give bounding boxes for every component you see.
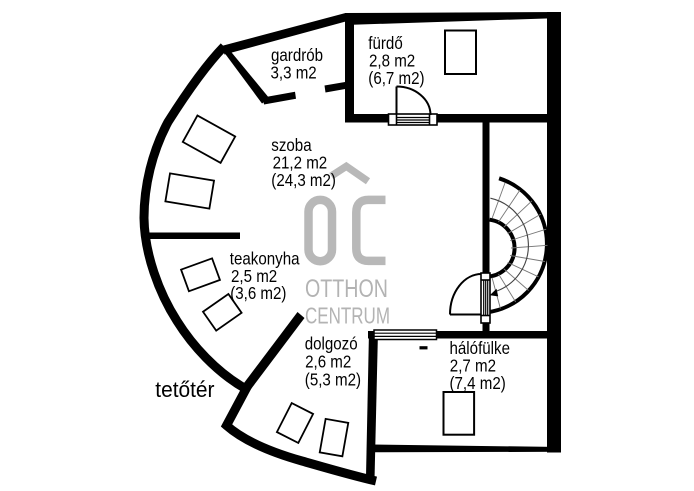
- svg-text:(3,6 m2): (3,6 m2): [230, 283, 286, 304]
- svg-text:tetőtér: tetőtér: [155, 378, 214, 403]
- svg-text:(5,3 m2): (5,3 m2): [305, 369, 361, 390]
- svg-text:(6,7 m2): (6,7 m2): [368, 68, 424, 89]
- svg-text:OTTHON: OTTHON: [305, 275, 388, 303]
- svg-text:(24,3 m2): (24,3 m2): [271, 170, 336, 191]
- svg-text:CENTRUM: CENTRUM: [305, 303, 390, 329]
- svg-text:3,3 m2: 3,3 m2: [271, 62, 317, 83]
- svg-text:(7,4 m2): (7,4 m2): [450, 373, 506, 394]
